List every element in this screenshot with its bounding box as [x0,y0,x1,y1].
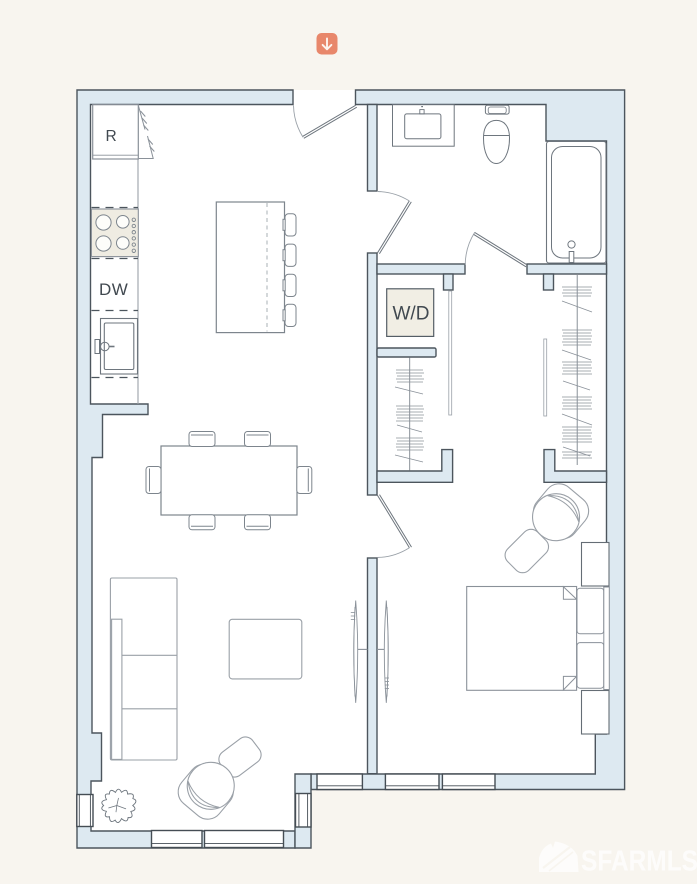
svg-text:DW: DW [99,280,128,299]
svg-text:SFARMLS: SFARMLS [581,846,697,878]
svg-text:W/D: W/D [393,304,430,325]
svg-text:R: R [106,128,118,145]
